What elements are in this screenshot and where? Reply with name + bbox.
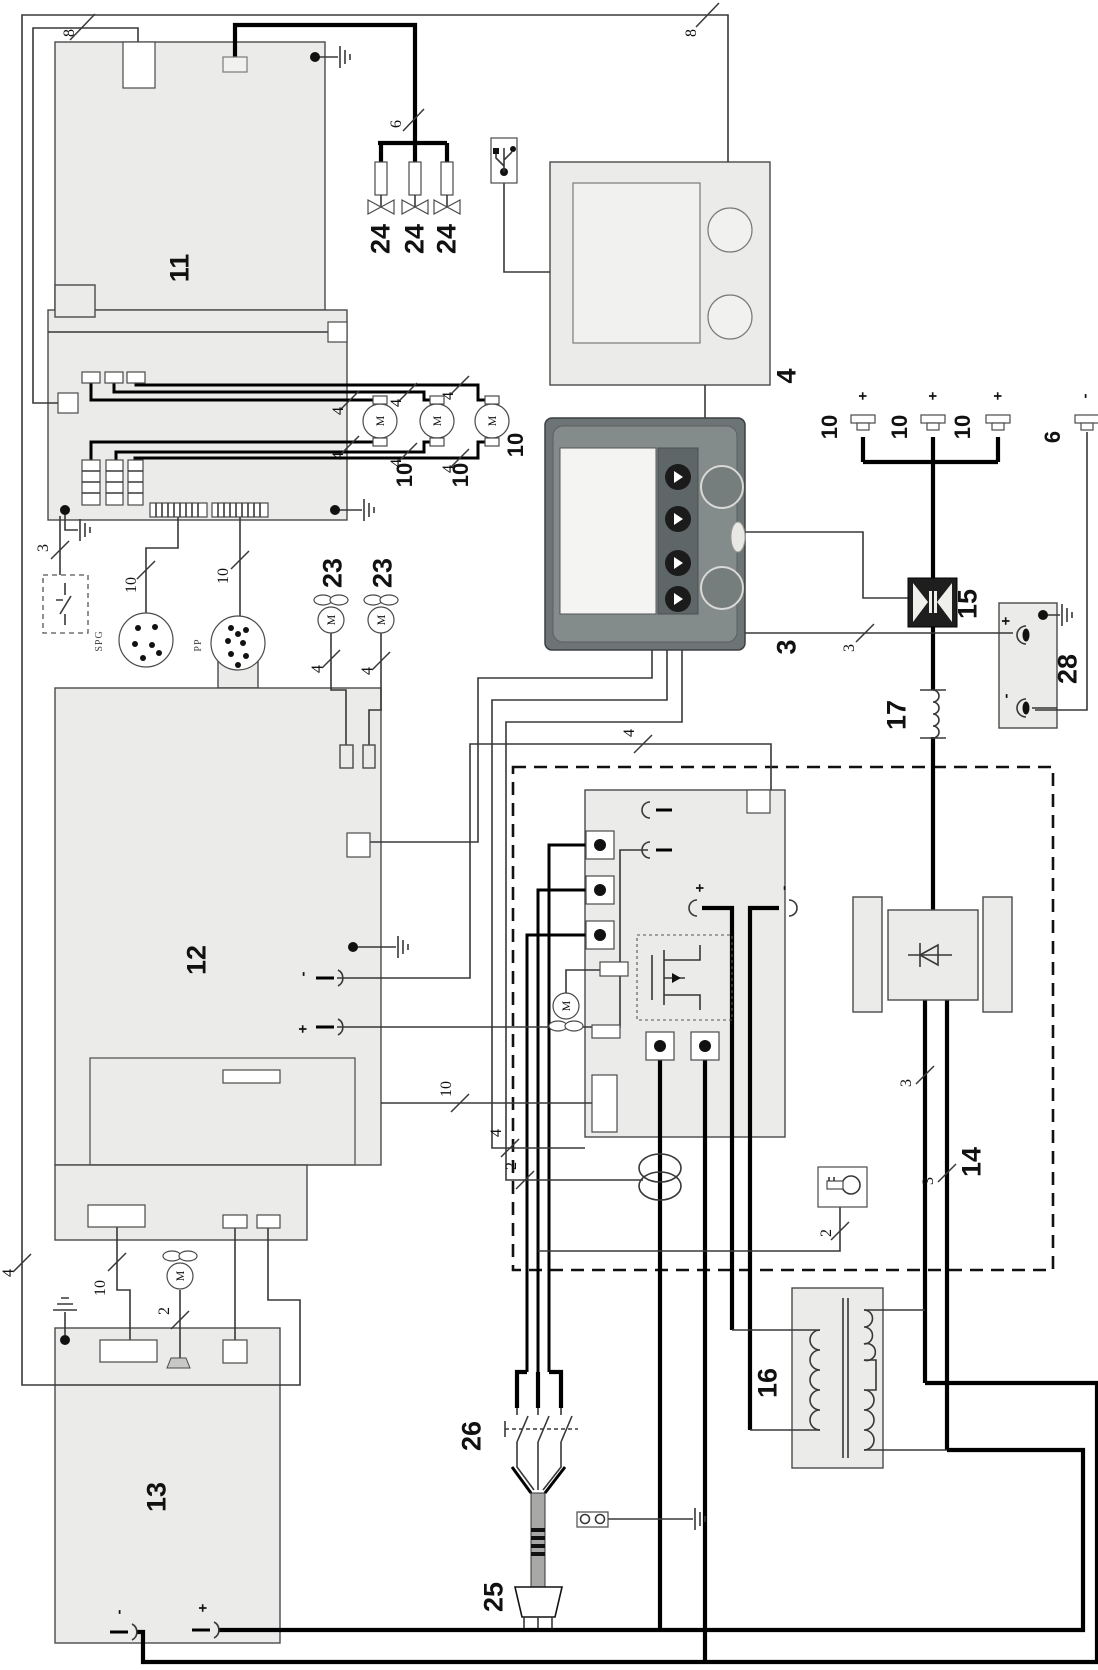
label-motor-m3: M (486, 416, 498, 427)
diagram-graphics (0, 0, 1098, 1670)
label-wire4-m5: 4 (389, 459, 405, 467)
key-switch-box (818, 1167, 867, 1207)
label-wire4-m4: 4 (331, 452, 347, 460)
label-batt6: 6 (1042, 431, 1064, 443)
label-fan-m4: M (174, 1271, 186, 1282)
patent-wiring-diagram: 11 12 13 14 15 16 17 28 3 4 24 24 24 23 … (0, 0, 1098, 1670)
label-wire4-left: 4 (1, 1269, 17, 1277)
label-wire10-pp: 10 (216, 568, 232, 584)
connector-spg (119, 613, 173, 667)
label-transformer16: 16 (755, 1368, 782, 1398)
display-unit-3 (545, 418, 745, 650)
label-switch26: 26 (459, 1421, 486, 1451)
label-fan23-2: 23 (370, 558, 397, 588)
label-wire8-right: 8 (684, 29, 700, 37)
label-plus-13: + (196, 1604, 211, 1613)
label-box14: 14 (959, 1147, 986, 1177)
mains-cable-plug-25 (515, 1493, 608, 1628)
label-wire6-valves: 6 (389, 120, 405, 128)
connector-pp (211, 616, 265, 670)
label-box12: 12 (184, 945, 211, 975)
label-igniter28: 28 (1055, 654, 1082, 684)
dashed-switch-3 (43, 575, 88, 633)
label-plus-b3: + (991, 392, 1006, 401)
label-plus-28: + (999, 617, 1014, 626)
label-wire2-fan: 2 (157, 1307, 173, 1315)
label-wire10-inv: 10 (439, 1081, 455, 1097)
label-plus-12: + (296, 1025, 311, 1034)
label-batt10-2: 10 (889, 415, 911, 439)
label-plus-b1: + (856, 392, 871, 401)
label-fan23-1: 23 (320, 558, 347, 588)
label-plus-inv: + (693, 884, 708, 893)
label-inductor17: 17 (884, 700, 911, 730)
label-fan-m2: M (375, 615, 387, 626)
label-minus-28: - (999, 694, 1014, 699)
label-wire10-batt: 10 (93, 1280, 109, 1296)
solenoid-valves-24 (368, 162, 460, 214)
component-boxes (48, 42, 1057, 1643)
label-box11: 11 (167, 254, 194, 283)
label-plug25: 25 (481, 1582, 508, 1612)
rectifier-block (853, 897, 1012, 1012)
label-wire4-f2: 4 (360, 667, 376, 675)
label-batt10-1: 10 (819, 415, 841, 439)
label-valve24-2: 24 (402, 224, 429, 254)
label-minus-b6: - (1078, 394, 1093, 399)
label-wire3-igniter: 3 (842, 644, 858, 652)
label-wire4-m2: 4 (389, 399, 405, 407)
horn-15 (908, 578, 957, 627)
label-motor-m1: M (374, 416, 386, 427)
label-wire4-m3: 4 (441, 392, 457, 400)
label-wire8-left: 8 (62, 29, 78, 37)
label-wire2-ct: 2 (504, 1162, 520, 1170)
label-motor-m2: M (431, 416, 443, 427)
label-motor10-3: 10 (505, 433, 527, 457)
label-conn-spg: SPG (95, 630, 105, 651)
label-wire3-out2: 3 (921, 1177, 937, 1185)
label-wire3-switchbox: 3 (36, 544, 52, 552)
label-minus-12: - (296, 972, 311, 977)
label-wire4-inv: 4 (489, 1129, 505, 1137)
label-minus-13: - (112, 1610, 127, 1615)
label-panel4: 4 (774, 368, 801, 383)
label-wire4-f1: 4 (310, 665, 326, 673)
label-wire10-spg: 10 (124, 577, 140, 593)
label-wire4-m1: 4 (331, 407, 347, 415)
label-wire2-key: 2 (819, 1229, 835, 1237)
label-minus-inv: - (777, 886, 792, 891)
label-valve24-3: 24 (434, 224, 461, 254)
label-display3: 3 (774, 639, 801, 654)
label-valve24-1: 24 (368, 224, 395, 254)
label-horn15: 15 (955, 589, 982, 619)
usb-icon (491, 138, 517, 183)
label-batt10-3: 10 (952, 415, 974, 439)
label-fan-m1: M (325, 615, 337, 626)
label-wire4-bundle: 4 (622, 729, 638, 737)
label-wire4-m6: 4 (441, 465, 457, 473)
label-fan-m3: M (560, 1001, 572, 1012)
inductor-17 (920, 690, 946, 738)
label-conn-pp: PP (194, 638, 204, 651)
label-plus-b2: + (926, 392, 941, 401)
label-box13: 13 (144, 1482, 171, 1512)
label-wire3-out1: 3 (899, 1079, 915, 1087)
